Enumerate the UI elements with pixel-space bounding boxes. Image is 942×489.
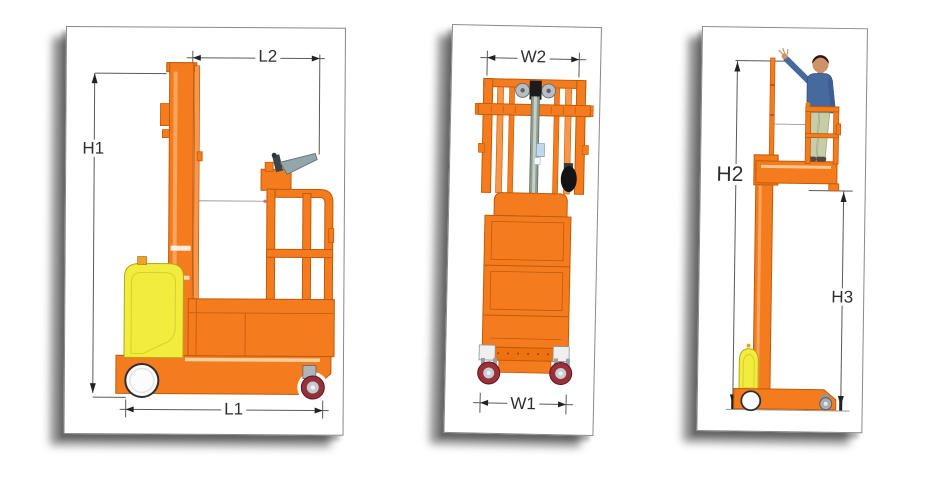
reach-view-drawing [697, 27, 867, 432]
dim-label-w2: W2 [517, 48, 549, 66]
front-view-drawing [444, 25, 600, 435]
extended-mast [753, 58, 775, 393]
battery-cover [124, 256, 184, 357]
panel-side-view: L2 H1 L1 [64, 26, 346, 436]
drive-wheel [125, 364, 158, 397]
dim-label-l1: L1 [221, 400, 246, 417]
dim-label-l2: L2 [255, 48, 280, 65]
diagram-canvas: L2 H1 L1 [0, 0, 942, 489]
drive-wheel-small [741, 391, 760, 410]
side-view-drawing [65, 27, 345, 435]
caster-wheel-right [549, 346, 572, 384]
dim-label-h1: H1 [79, 140, 107, 157]
dim-label-h3: H3 [828, 288, 856, 305]
panel-reach-view: H2 H3 [696, 26, 868, 433]
dim-label-w1: W1 [507, 395, 539, 413]
dim-label-h2: H2 [713, 164, 746, 185]
panel-front-view: W2 W1 [443, 24, 602, 436]
control-lever [261, 153, 317, 191]
platform-railing [266, 189, 334, 311]
